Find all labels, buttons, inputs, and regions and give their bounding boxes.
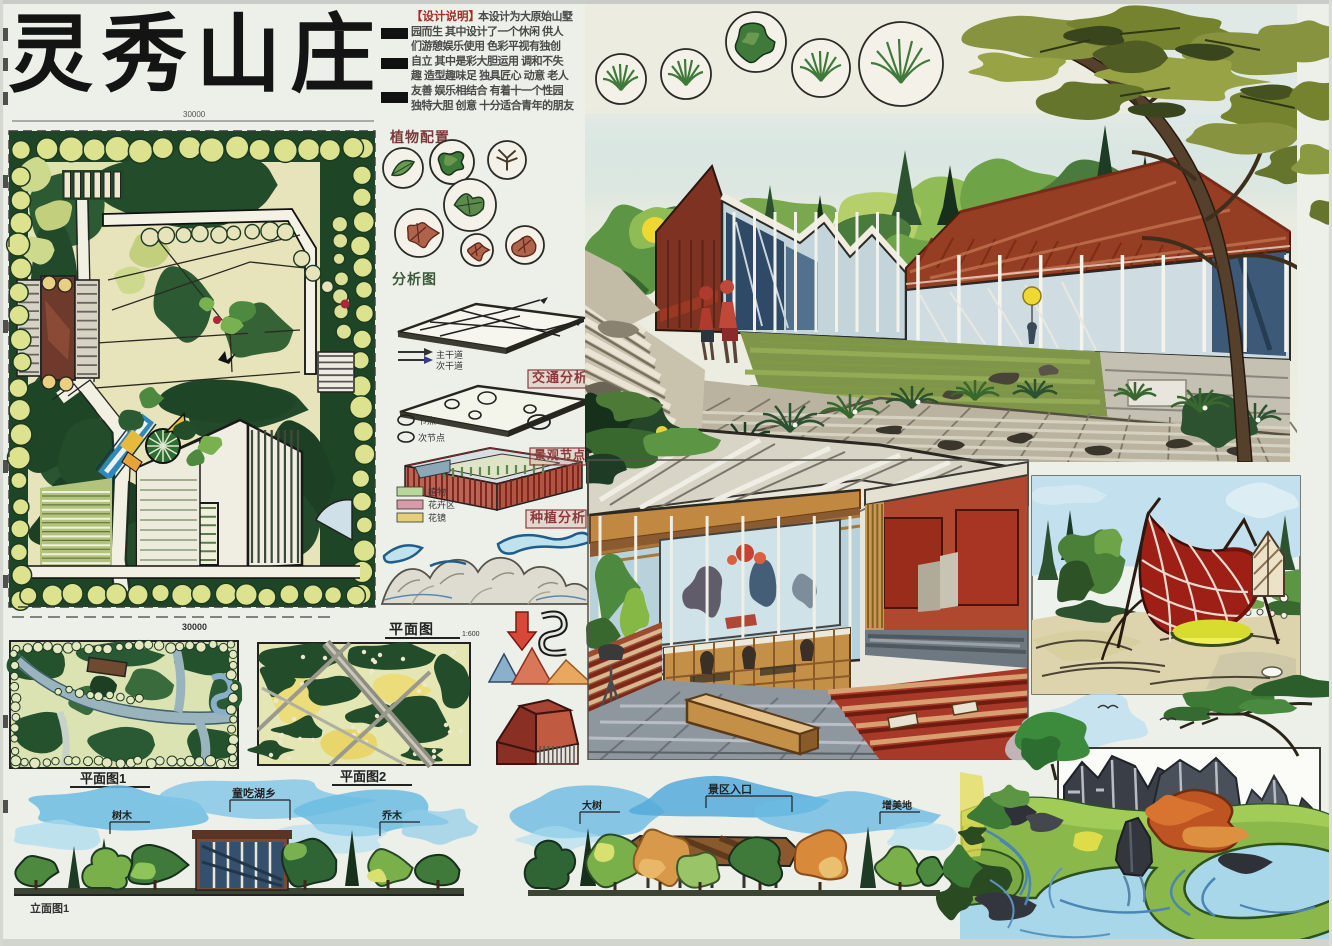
svg-text:景观节点: 景观节点 (534, 447, 586, 462)
svg-text:本设计为大原始山墅: 本设计为大原始山墅 (478, 9, 573, 23)
svg-text:们游憩娱乐使用 色彩平视有独创: 们游憩娱乐使用 色彩平视有独创 (411, 39, 561, 53)
svg-text:平面图1: 平面图1 (80, 771, 126, 786)
svg-text:【设计说明】: 【设计说明】 (411, 9, 480, 23)
svg-text:增美地: 增美地 (882, 799, 912, 812)
svg-text:独特大胆 创意 十分适合青年的朋友: 独特大胆 创意 十分适合青年的朋友 (410, 98, 574, 112)
svg-text:30000: 30000 (182, 622, 207, 632)
svg-text:花卉区: 花卉区 (428, 499, 455, 510)
svg-text:立面图1: 立面图1 (30, 901, 69, 915)
svg-text:1:600: 1:600 (462, 631, 480, 638)
svg-text:灵秀山庄: 灵秀山庄 (8, 8, 384, 103)
svg-text:平面图2: 平面图2 (340, 769, 386, 784)
svg-text:交通分析: 交通分析 (532, 370, 588, 385)
svg-text:树木: 树木 (112, 809, 133, 822)
svg-text:节点: 节点 (418, 416, 436, 426)
svg-text:友善 娱乐相结合 有着十一个性园: 友善 娱乐相结合 有着十一个性园 (411, 83, 564, 97)
svg-text:平面图: 平面图 (389, 621, 434, 637)
svg-text:童吃湖乡: 童吃湖乡 (232, 786, 276, 800)
svg-text:花镜: 花镜 (428, 512, 446, 523)
svg-text:园而生 其中设计了一个休闲 供人: 园而生 其中设计了一个休闲 供人 (411, 24, 565, 38)
svg-text:自立 其中是彩大胆运用 调和不失: 自立 其中是彩大胆运用 调和不失 (411, 53, 565, 67)
svg-text:景区入口: 景区入口 (707, 783, 752, 796)
svg-text:30000: 30000 (183, 110, 206, 119)
svg-text:主干道: 主干道 (436, 349, 463, 360)
svg-text:分析图: 分析图 (392, 271, 437, 287)
svg-text:趣 造型趣味足 独具匠心 动意 老人: 趣 造型趣味足 独具匠心 动意 老人 (410, 68, 570, 82)
svg-text:植物: 植物 (428, 486, 446, 497)
svg-text:次节点: 次节点 (418, 432, 445, 443)
svg-text:种植分析: 种植分析 (529, 510, 586, 525)
svg-text:大树: 大树 (582, 799, 602, 812)
svg-text:乔木: 乔木 (381, 809, 403, 822)
svg-text:次干道: 次干道 (436, 360, 463, 371)
